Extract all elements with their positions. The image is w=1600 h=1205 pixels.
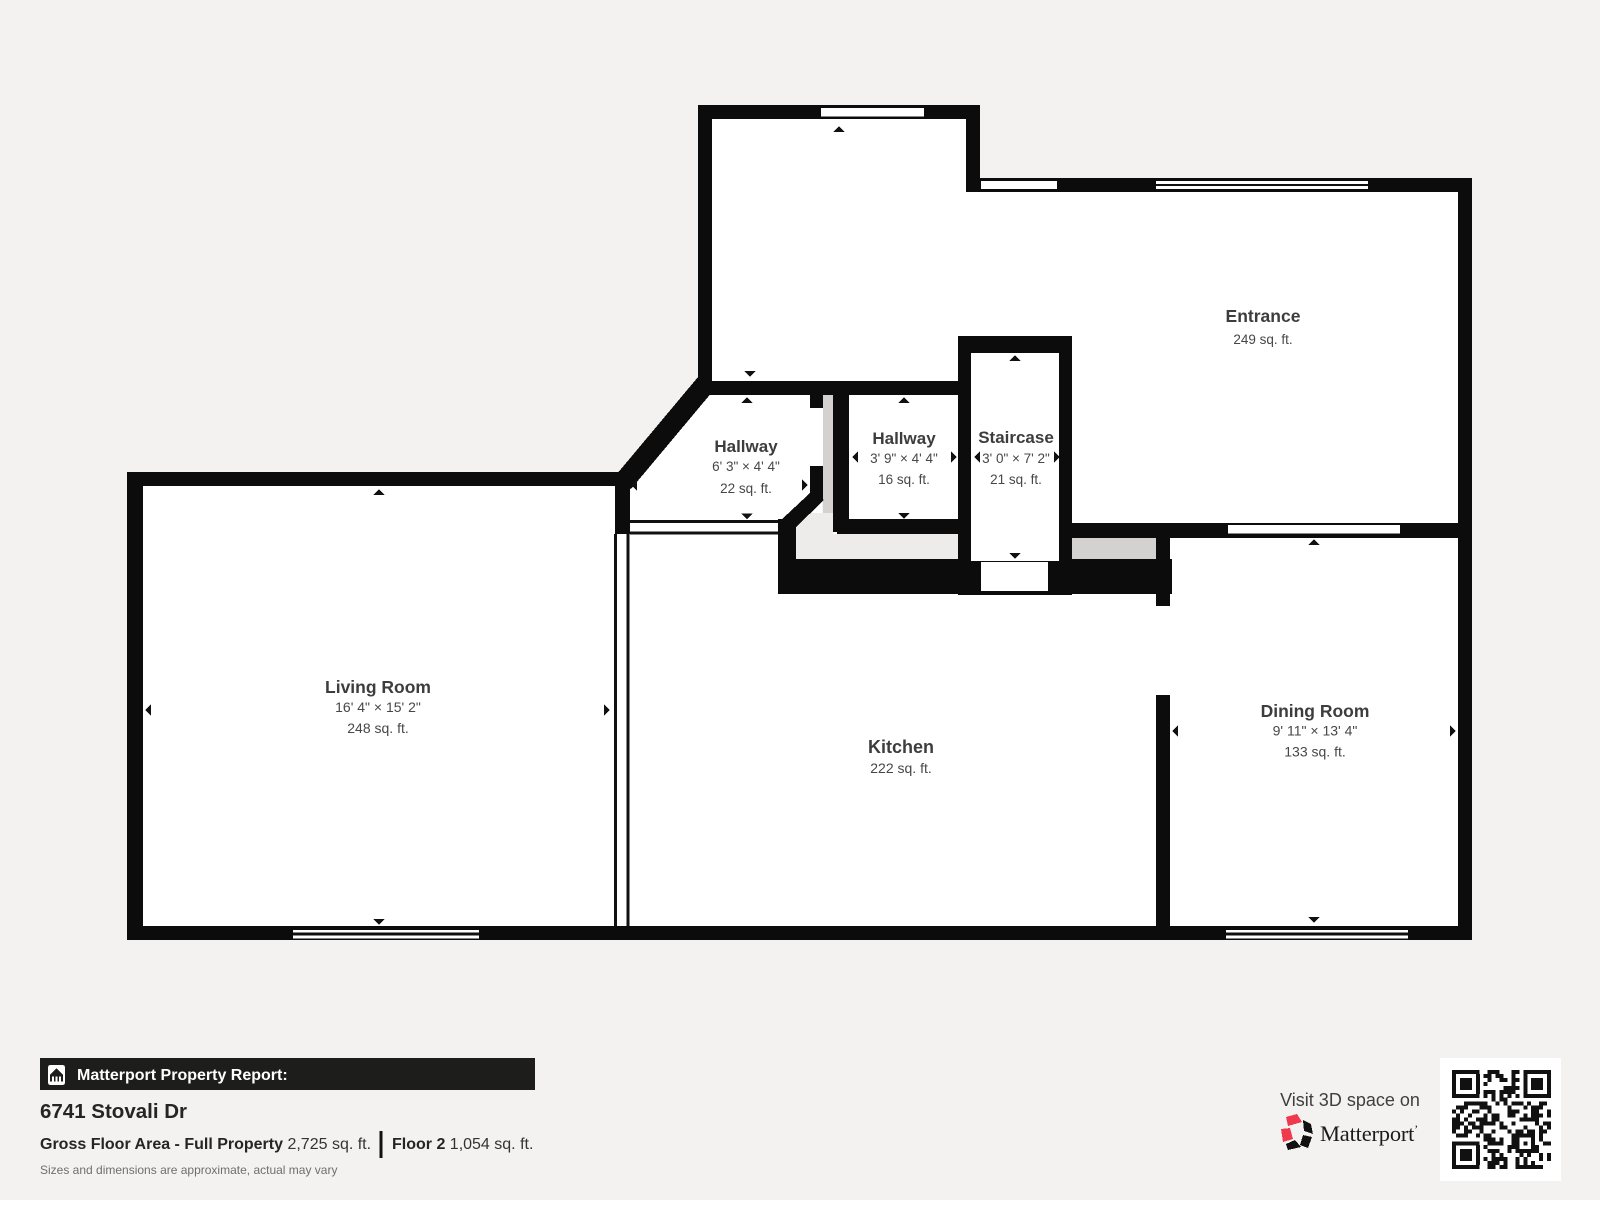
svg-text:Hallway: Hallway [872,429,936,448]
svg-text:6' 3" × 4' 4": 6' 3" × 4' 4" [712,459,780,474]
svg-text:Hallway: Hallway [714,437,778,456]
svg-text:Matterport’: Matterport’ [1320,1121,1418,1146]
svg-text:3' 9" × 4' 4": 3' 9" × 4' 4" [870,451,938,466]
svg-text:Sizes and dimensions are appro: Sizes and dimensions are approximate, ac… [40,1163,337,1177]
svg-text:Matterport Property Report:: Matterport Property Report: [77,1067,288,1084]
svg-text:21 sq. ft.: 21 sq. ft. [990,472,1042,487]
svg-text:249 sq. ft.: 249 sq. ft. [1233,332,1292,347]
svg-text:6741 Stovali Dr: 6741 Stovali Dr [40,1100,187,1123]
svg-text:Dining Room: Dining Room [1261,701,1370,721]
svg-text:3' 0" × 7' 2": 3' 0" × 7' 2" [982,451,1050,466]
svg-text:Entrance: Entrance [1226,306,1301,326]
svg-text:9' 11" × 13' 4": 9' 11" × 13' 4" [1273,723,1358,739]
svg-text:Kitchen: Kitchen [868,737,934,757]
svg-text:222 sq. ft.: 222 sq. ft. [870,760,931,776]
svg-text:133 sq. ft.: 133 sq. ft. [1284,744,1345,760]
svg-text:16 sq. ft.: 16 sq. ft. [878,472,930,487]
svg-text:248 sq. ft.: 248 sq. ft. [347,720,408,736]
svg-text:Staircase: Staircase [978,428,1054,447]
svg-text:Living Room: Living Room [325,677,431,697]
svg-text:Gross Floor Area - Full Proper: Gross Floor Area - Full Property 2,725 s… [40,1136,371,1153]
svg-text:Floor 2 1,054 sq. ft.: Floor 2 1,054 sq. ft. [392,1136,533,1153]
svg-text:Visit 3D space on: Visit 3D space on [1280,1090,1420,1110]
svg-text:16' 4" × 15' 2": 16' 4" × 15' 2" [335,699,421,715]
svg-text:22 sq. ft.: 22 sq. ft. [720,481,772,496]
